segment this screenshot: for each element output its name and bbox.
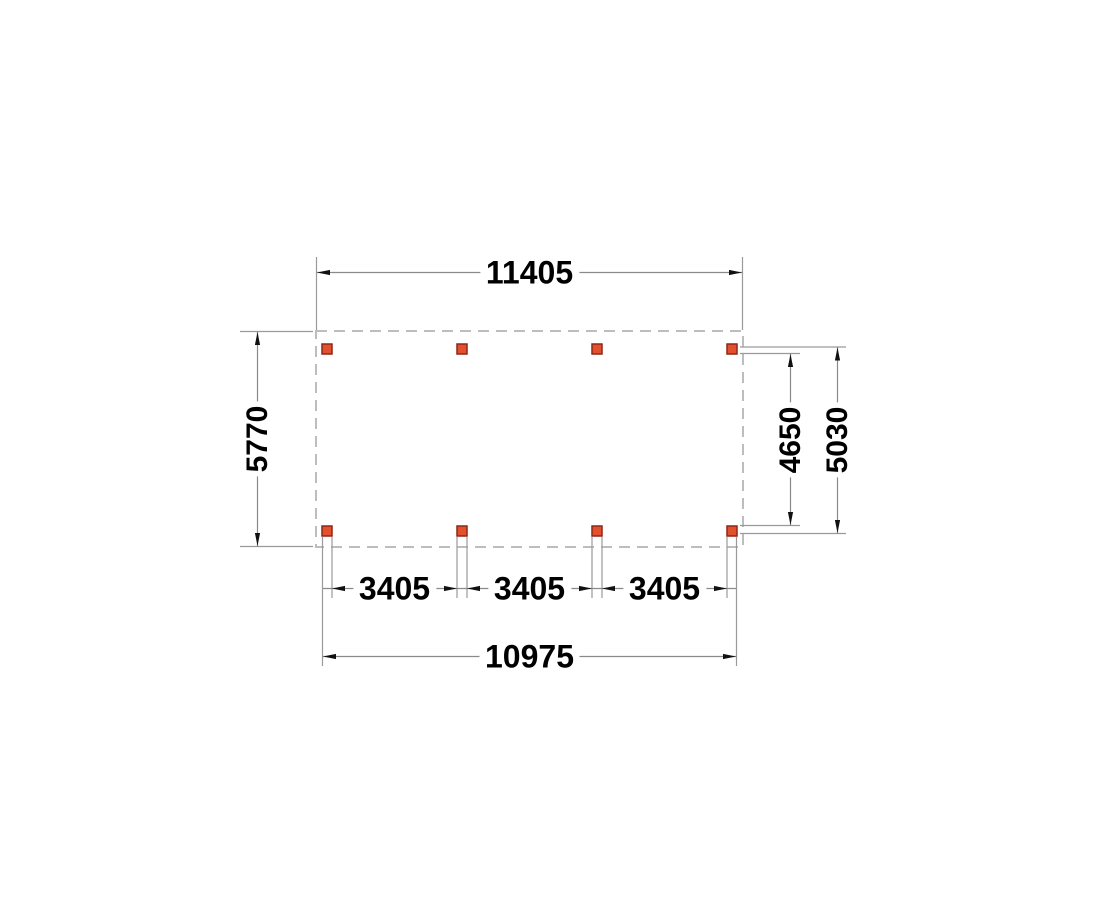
dim-label-bottom-width: 10975 — [479, 639, 580, 674]
post-marker — [592, 526, 602, 536]
drawing-canvas: 11405 5770 4650 5030 3405 3405 3405 1097… — [0, 0, 1095, 913]
dim-label-post-spacing-1: 3405 — [353, 571, 436, 606]
arrowhead-right — [729, 270, 742, 275]
plan-drawing — [0, 0, 1095, 913]
arrowhead-right — [444, 586, 457, 591]
arrowhead-left — [467, 586, 480, 591]
post-marker — [457, 344, 467, 354]
dim-label-post-spacing-3: 3405 — [623, 571, 706, 606]
arrowhead-down — [788, 512, 793, 525]
post-marker — [727, 526, 737, 536]
arrowhead-up — [835, 348, 840, 361]
arrowhead-left — [332, 586, 345, 591]
arrowhead-left — [602, 586, 615, 591]
post-marker — [727, 344, 737, 354]
post-marker — [322, 526, 332, 536]
post-marker — [322, 344, 332, 354]
structure-outline — [316, 331, 743, 547]
post-markers — [322, 344, 737, 536]
arrowhead-left — [323, 654, 336, 659]
dim-label-left-height: 5770 — [241, 402, 273, 477]
post-marker — [457, 526, 467, 536]
dim-label-right-inner-height: 4650 — [774, 402, 806, 477]
arrowhead-down — [835, 520, 840, 533]
arrowhead-right — [579, 586, 592, 591]
dim-label-top-width: 11405 — [480, 255, 579, 290]
arrowhead-left — [317, 270, 330, 275]
dim-label-post-spacing-2: 3405 — [488, 571, 571, 606]
arrowhead-right — [723, 654, 736, 659]
arrowhead-down — [255, 533, 260, 546]
arrowhead-up — [788, 354, 793, 367]
arrowhead-up — [255, 332, 260, 345]
dim-label-right-outer-height: 5030 — [821, 403, 853, 478]
arrowhead-right — [714, 586, 727, 591]
post-marker — [592, 344, 602, 354]
